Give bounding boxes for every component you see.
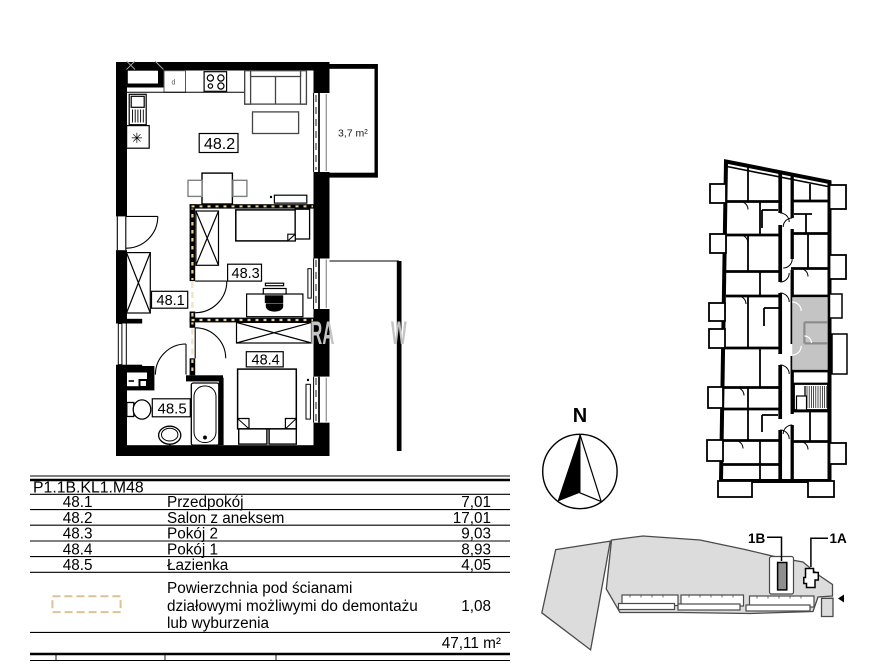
svg-text:działowymi możliwymi do demont: działowymi możliwymi do demontażu (167, 598, 418, 615)
svg-text:Pokój 1: Pokój 1 (167, 541, 218, 558)
svg-text:48.4: 48.4 (63, 541, 93, 558)
svg-text:W: W (391, 316, 407, 351)
svg-text:Pokój 2: Pokój 2 (167, 526, 218, 543)
svg-text:Przedpokój: Przedpokój (167, 494, 244, 511)
svg-text:1B: 1B (748, 531, 766, 546)
svg-text:48.1: 48.1 (63, 494, 93, 511)
svg-text:48.5: 48.5 (158, 401, 187, 418)
svg-text:d: d (172, 80, 176, 87)
svg-text:Salon z aneksem: Salon z aneksem (167, 510, 284, 527)
svg-text:48.5: 48.5 (63, 557, 93, 574)
svg-text:48.1: 48.1 (157, 293, 185, 309)
svg-text:3,7 m²: 3,7 m² (338, 128, 368, 140)
svg-text:N: N (573, 405, 587, 427)
svg-text:7,01: 7,01 (461, 494, 491, 511)
svg-text:17,01: 17,01 (453, 510, 491, 527)
svg-text:48.2: 48.2 (63, 510, 93, 527)
svg-text:47,11 m²: 47,11 m² (442, 635, 501, 652)
svg-text:1,08: 1,08 (461, 598, 491, 615)
svg-text:Łazienka: Łazienka (167, 557, 229, 574)
svg-text:8,93: 8,93 (461, 541, 491, 558)
svg-text:Powierzchnia pod ścianami: Powierzchnia pod ścianami (167, 580, 352, 597)
svg-text:48.4: 48.4 (252, 353, 280, 369)
svg-text:1A: 1A (830, 531, 848, 546)
svg-text:lub wyburzenia: lub wyburzenia (167, 615, 270, 632)
svg-text:4,05: 4,05 (461, 557, 491, 574)
svg-text:48.2: 48.2 (204, 136, 235, 153)
svg-text:RA: RA (310, 316, 334, 351)
svg-text:✳: ✳ (131, 130, 143, 146)
svg-text:48.3: 48.3 (232, 266, 260, 282)
svg-text:9,03: 9,03 (461, 526, 491, 543)
svg-text:48.3: 48.3 (63, 526, 93, 543)
